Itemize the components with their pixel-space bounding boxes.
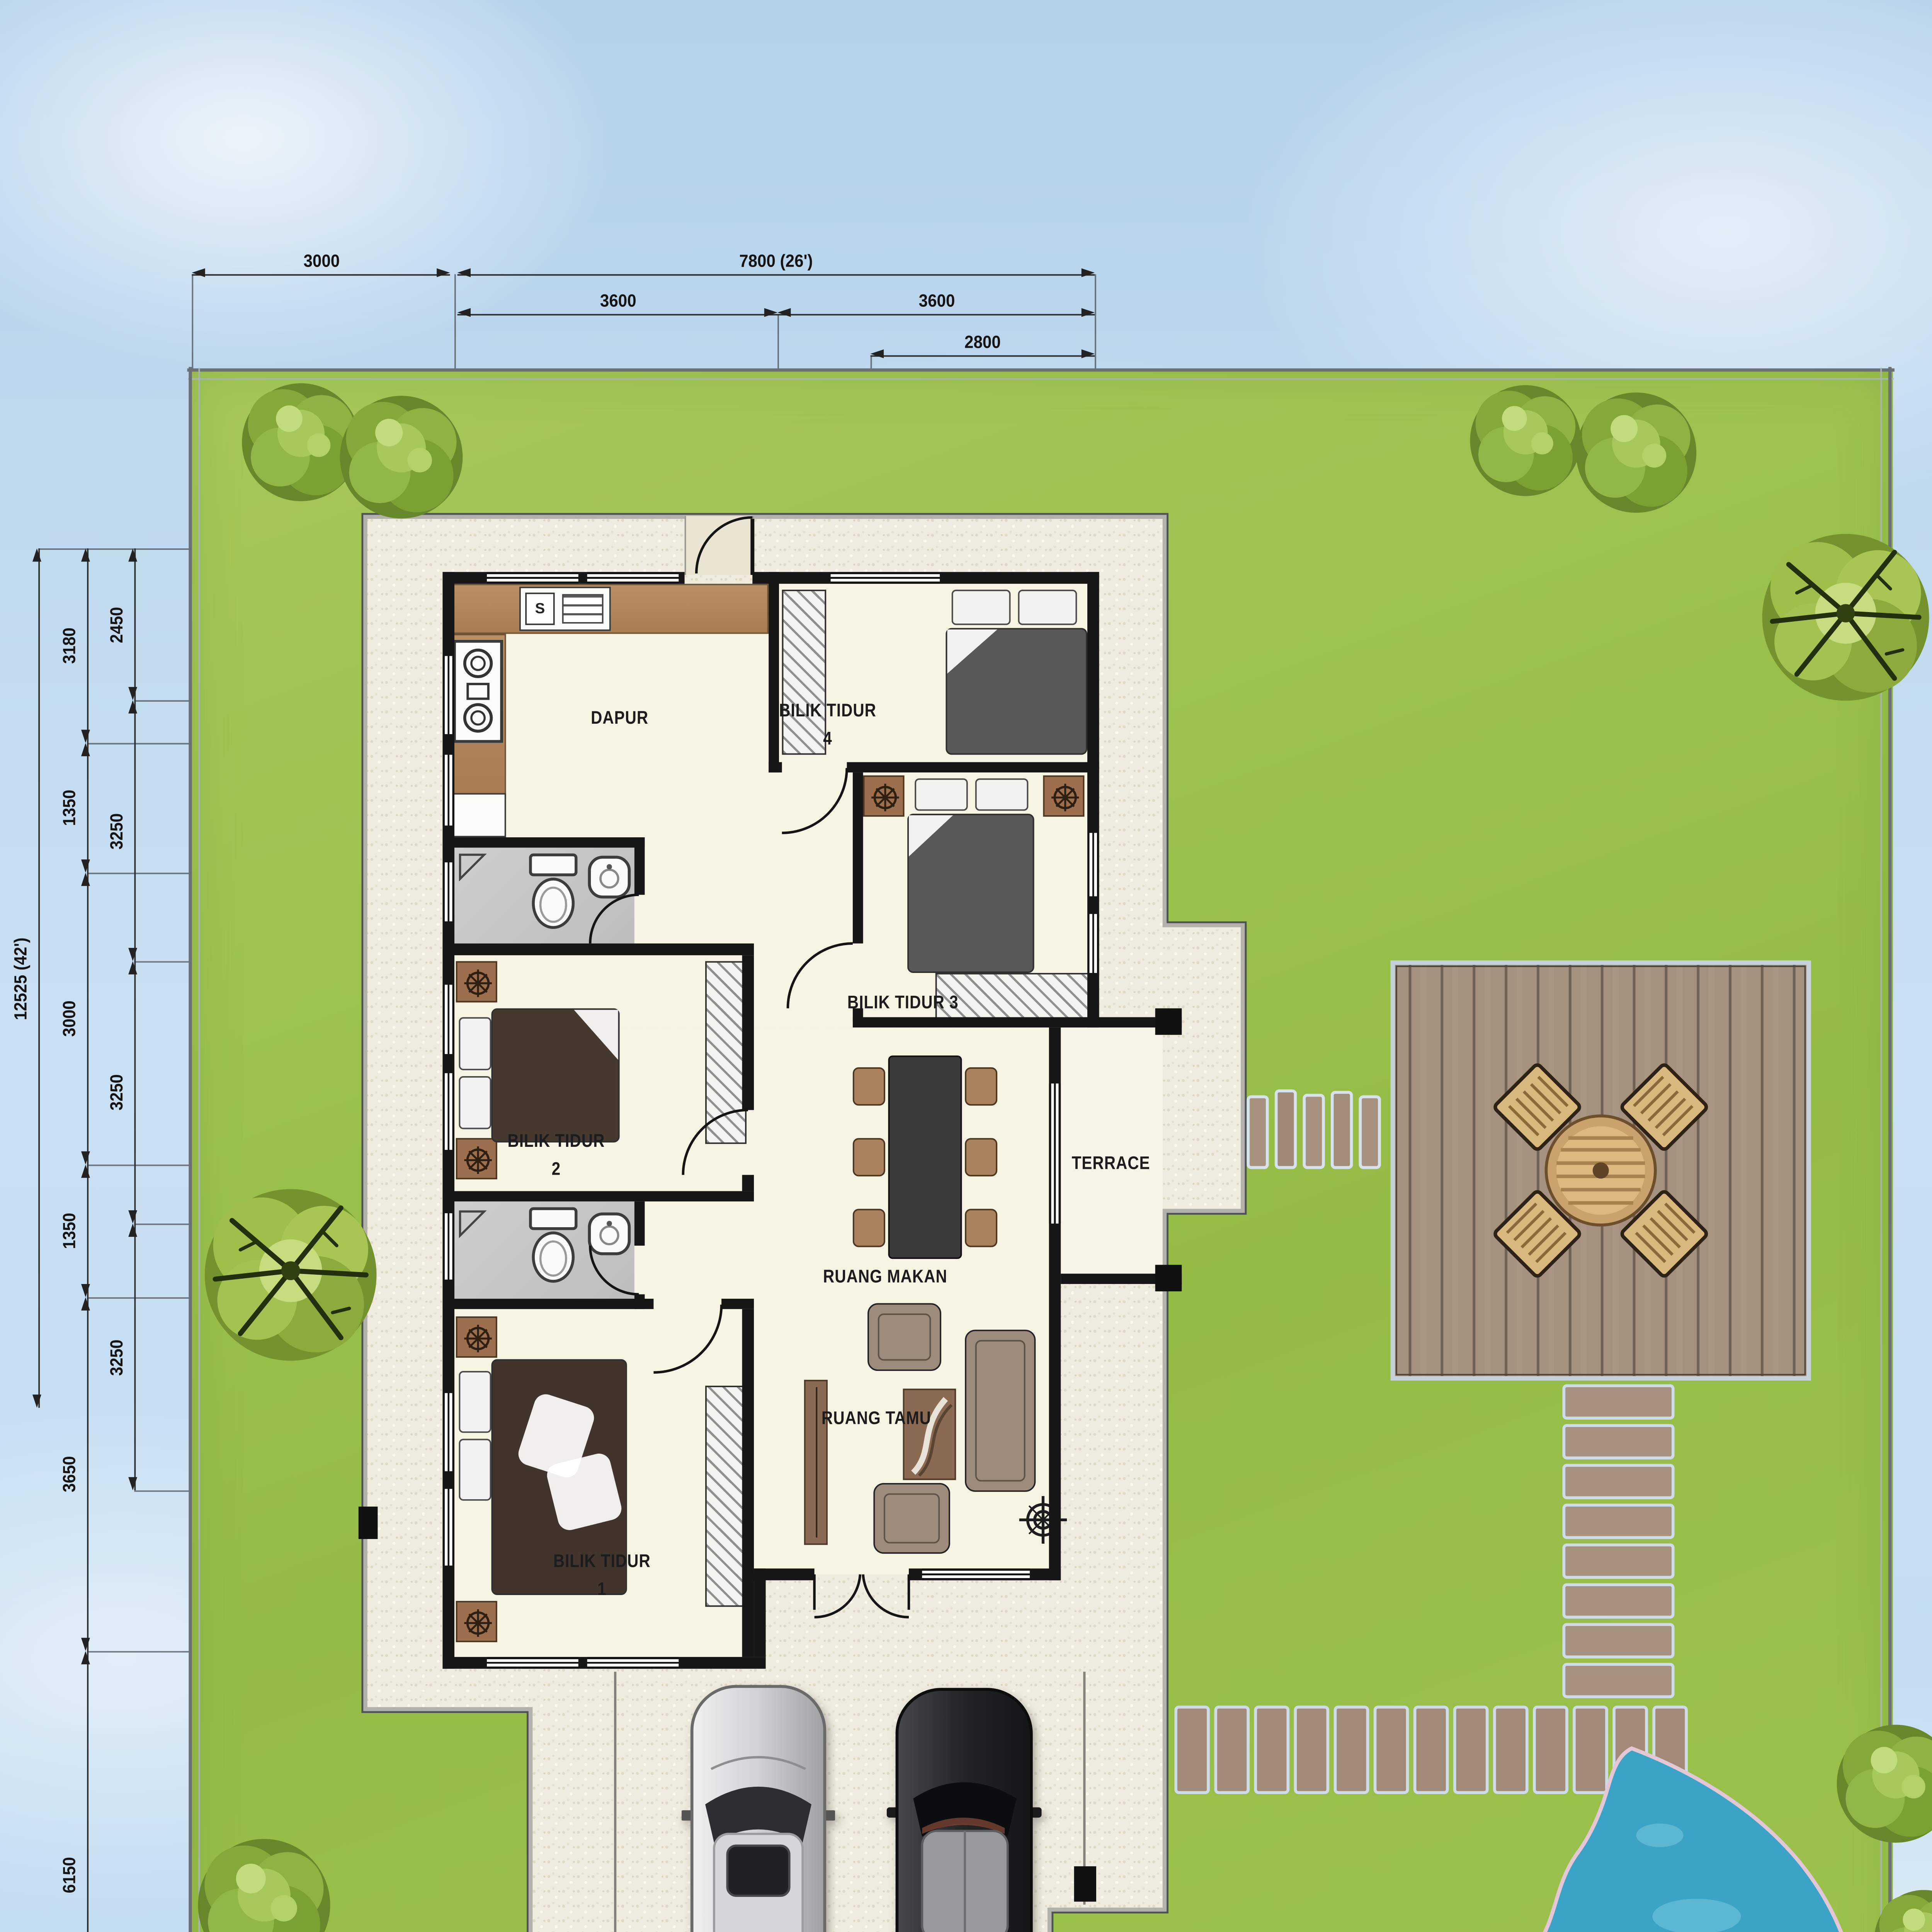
door-arc-icon — [696, 517, 752, 573]
room-label-terrace: TERRACE — [1072, 1153, 1150, 1173]
room-label-bilik-tidur-1: BILIK TIDUR — [553, 1551, 651, 1571]
door-arc-icon — [788, 944, 853, 1009]
tree-icon — [186, 1156, 395, 1386]
room-label-bilik-tidur-1-num: 1 — [597, 1579, 607, 1599]
door-arc-icon — [863, 1575, 909, 1617]
tree-icon — [260, 1910, 490, 1932]
door-arc-icon — [590, 1246, 639, 1294]
room-label-bilik-tidur-2-num: 2 — [552, 1159, 561, 1179]
door-arc-icon — [815, 1575, 860, 1617]
room-label-bilik-tidur-4-num: 4 — [823, 728, 832, 749]
door-swings — [0, 0, 1932, 1932]
door-arc-icon — [590, 895, 639, 944]
floor-plan-canvas: 3000 7800 (26') 3600 3600 2800 12525 (42… — [0, 0, 1932, 1932]
room-label-bilik-tidur-3: BILIK TIDUR 3 — [847, 992, 959, 1013]
tree-icon — [1818, 1707, 1932, 1855]
tree-icon — [1549, 374, 1723, 525]
room-label-dapur: DAPUR — [591, 707, 648, 728]
tree-icon — [1862, 1872, 1932, 1932]
room-label-ruang-makan: RUANG MAKAN — [823, 1266, 947, 1287]
room-label-bilik-tidur-4: BILIK TIDUR — [779, 700, 876, 721]
room-label-ruang-tamu: RUANG TAMU — [821, 1408, 931, 1428]
silver-car-icon — [682, 1680, 835, 1932]
tree-icon — [313, 378, 490, 531]
door-arc-icon — [653, 1304, 721, 1372]
room-label-bilik-tidur-2: BILIK TIDUR — [508, 1131, 605, 1151]
door-arc-icon — [782, 768, 847, 833]
door-arc-icon — [683, 1110, 748, 1175]
black-car-icon — [887, 1684, 1042, 1932]
tree-icon — [1744, 501, 1932, 725]
